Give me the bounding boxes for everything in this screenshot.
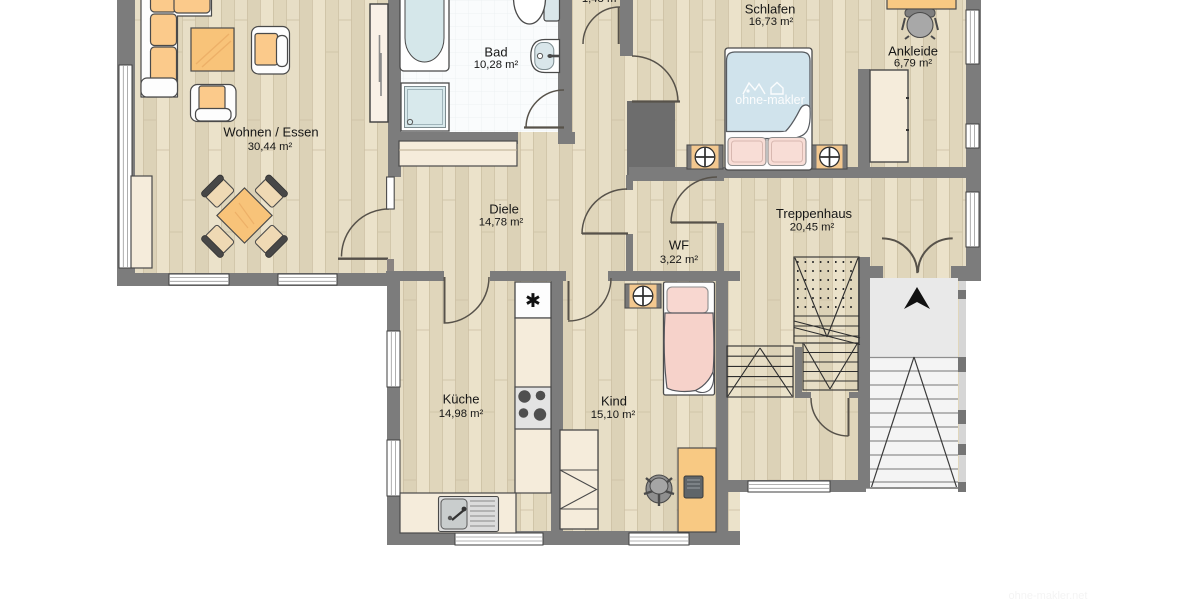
svg-text:20,45 m²: 20,45 m² <box>790 222 835 234</box>
svg-text:10,28 m²: 10,28 m² <box>474 59 519 71</box>
svg-text:1,48 m²: 1,48 m² <box>582 0 621 5</box>
svg-text:Küche: Küche <box>443 392 480 407</box>
svg-text:14,78 m²: 14,78 m² <box>479 217 524 229</box>
svg-text:Kind: Kind <box>601 394 627 409</box>
svg-text:✱: ✱ <box>525 291 541 312</box>
svg-text:6,79 m²: 6,79 m² <box>894 58 933 70</box>
svg-text:3,22 m²: 3,22 m² <box>660 254 699 266</box>
svg-text:16,73 m²: 16,73 m² <box>749 16 794 28</box>
svg-text:WF: WF <box>669 238 689 253</box>
svg-text:Ankleide: Ankleide <box>888 44 938 59</box>
svg-text:14,98 m²: 14,98 m² <box>439 408 484 420</box>
svg-text:ohne-makler.net: ohne-makler.net <box>1009 590 1088 600</box>
svg-text:Wohnen / Essen: Wohnen / Essen <box>223 125 318 140</box>
svg-text:Treppenhaus: Treppenhaus <box>776 206 853 221</box>
svg-text:Diele: Diele <box>489 202 519 217</box>
svg-text:30,44 m²: 30,44 m² <box>248 141 293 153</box>
svg-text:Bad: Bad <box>484 45 507 60</box>
svg-text:ohne-makler: ohne-makler <box>735 93 804 107</box>
svg-text:Schlafen: Schlafen <box>745 2 796 17</box>
svg-text:15,10 m²: 15,10 m² <box>591 409 636 421</box>
